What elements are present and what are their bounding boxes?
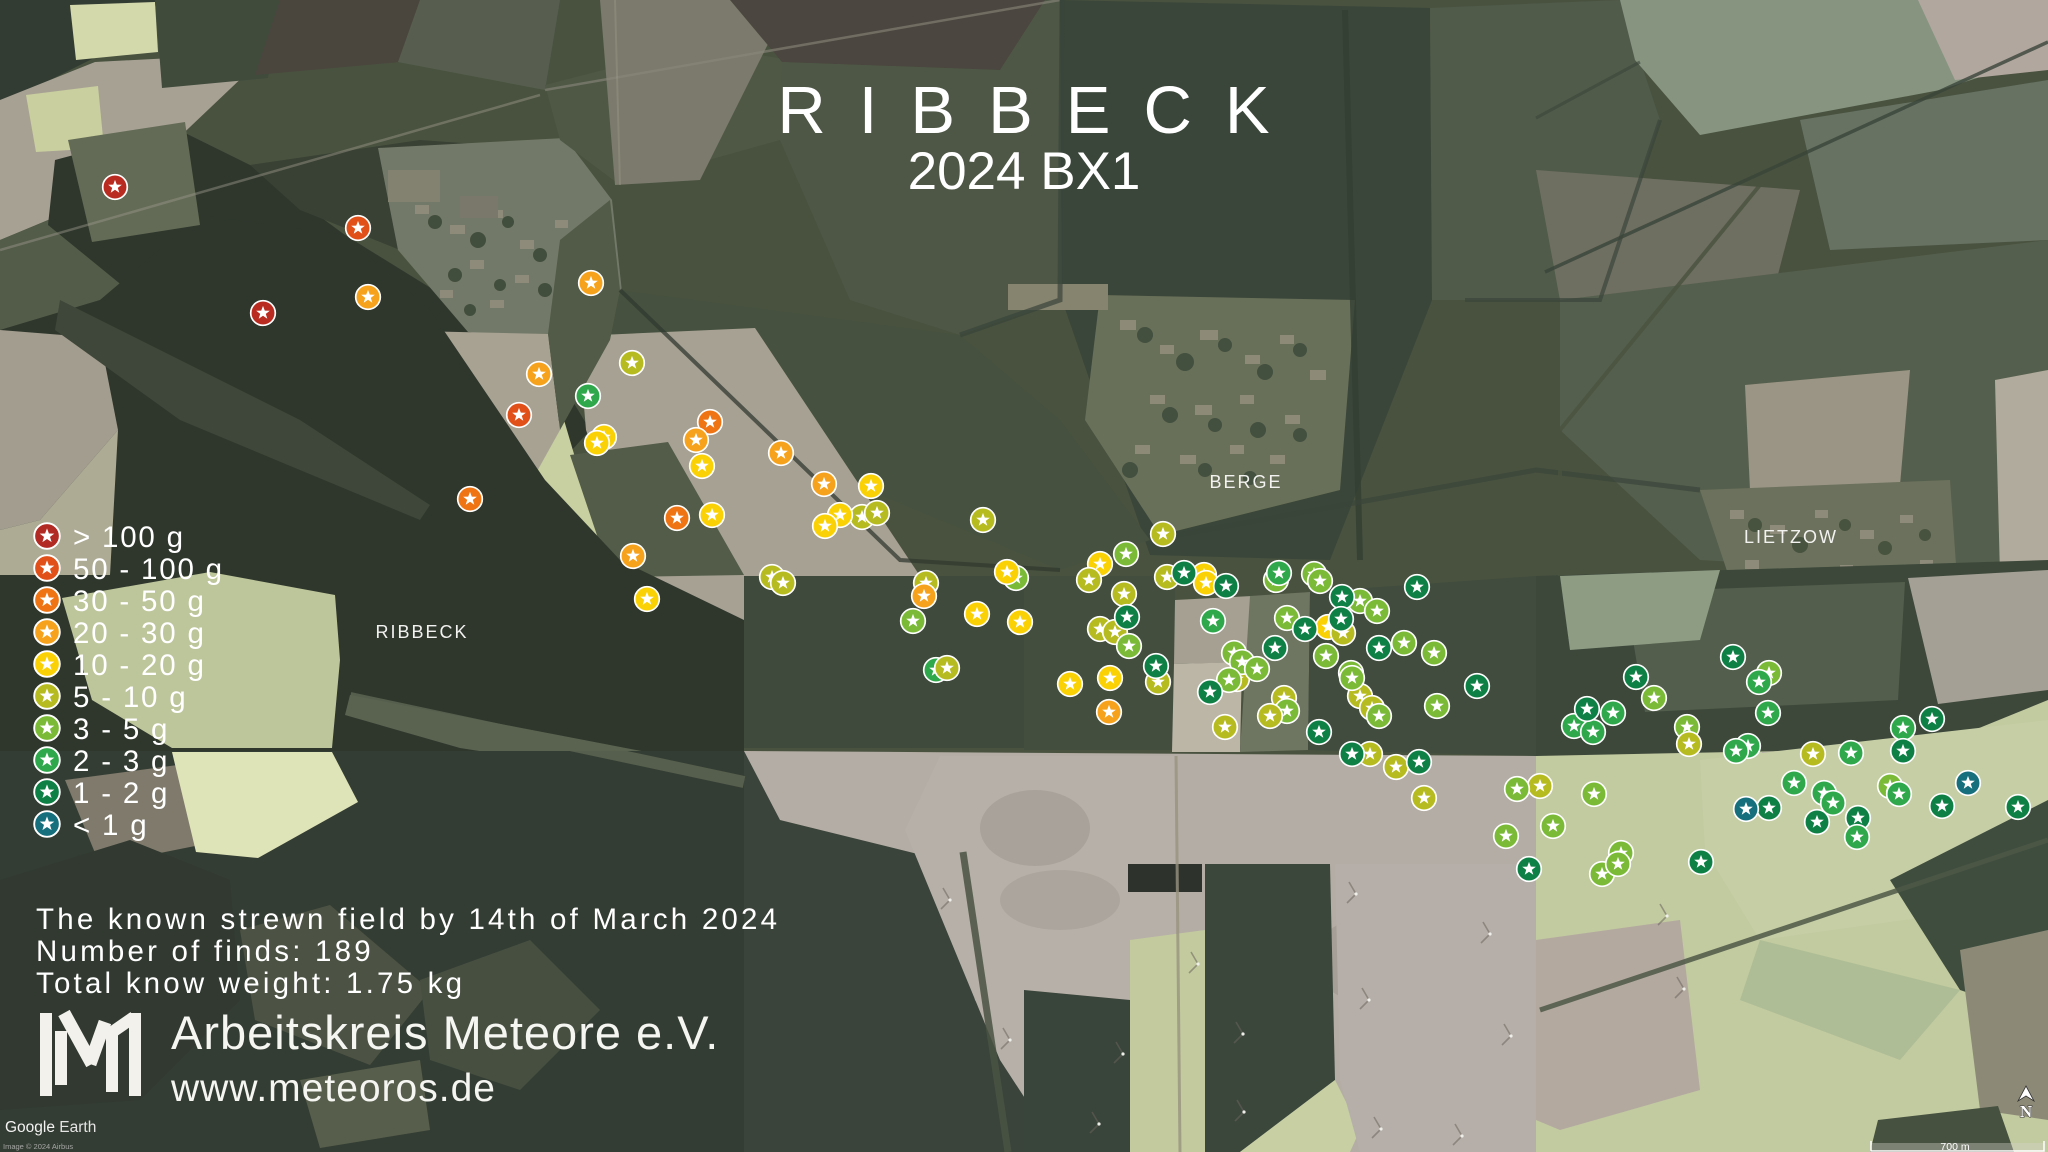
svg-text:20 - 30 g: 20 - 30 g	[73, 617, 206, 650]
svg-text:LIETZOW: LIETZOW	[1744, 527, 1838, 547]
svg-text:Number of finds: 189: Number of finds: 189	[36, 935, 374, 968]
svg-text:The known strewn field by 14th: The known strewn field by 14th of March …	[36, 903, 780, 936]
svg-text:< 1 g: < 1 g	[73, 809, 148, 842]
svg-text:3 - 5 g: 3 - 5 g	[73, 713, 169, 746]
svg-text:N: N	[2020, 1102, 2033, 1121]
svg-text:30 - 50 g: 30 - 50 g	[73, 585, 206, 618]
svg-text:BERGE: BERGE	[1209, 472, 1282, 492]
svg-text:www.meteoros.de: www.meteoros.de	[170, 1067, 496, 1110]
svg-text:RIBBECK: RIBBECK	[777, 73, 1302, 148]
svg-text:> 100 g: > 100 g	[73, 521, 185, 554]
svg-text:50 - 100 g: 50 - 100 g	[73, 553, 224, 586]
svg-text:10 - 20 g: 10 - 20 g	[73, 649, 206, 682]
svg-text:700 m: 700 m	[1940, 1141, 1969, 1152]
svg-text:Arbeitskreis Meteore e.V.: Arbeitskreis Meteore e.V.	[171, 1006, 719, 1059]
svg-text:Google Earth: Google Earth	[5, 1119, 96, 1136]
svg-text:Total know weight: 1.75 kg: Total know weight: 1.75 kg	[36, 967, 465, 1000]
svg-text:RIBBECK: RIBBECK	[375, 622, 468, 642]
svg-text:Image © 2024 Airbus: Image © 2024 Airbus	[3, 1142, 73, 1151]
svg-text:5 - 10 g: 5 - 10 g	[73, 681, 187, 714]
svg-text:1 - 2 g: 1 - 2 g	[73, 777, 169, 810]
svg-text:2024 BX1: 2024 BX1	[908, 142, 1141, 201]
svg-text:2 - 3 g: 2 - 3 g	[73, 745, 169, 778]
